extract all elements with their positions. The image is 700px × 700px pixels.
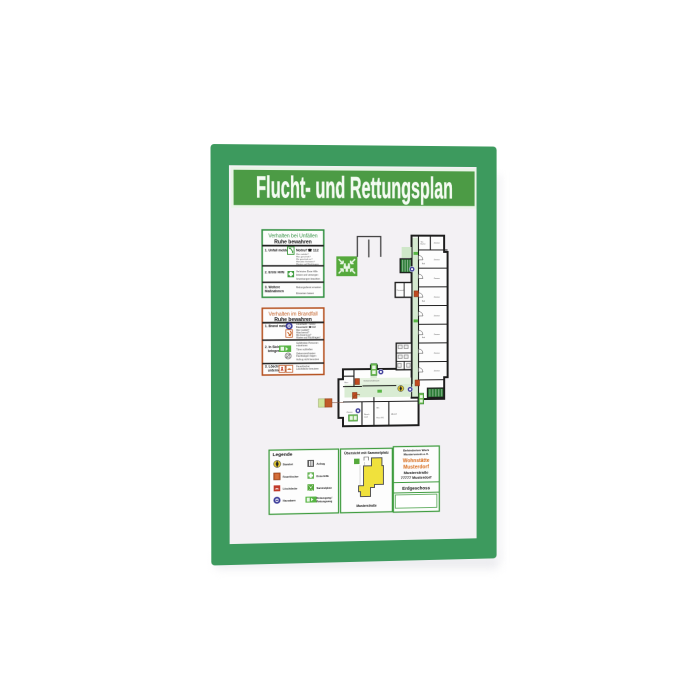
- svg-text:Abstell: Abstell: [391, 413, 397, 416]
- svg-text:Bad: Bad: [422, 337, 425, 339]
- svg-text:Büro: Büro: [344, 382, 348, 384]
- svg-text:Erdgeschoss: Erdgeschoss: [402, 485, 430, 490]
- svg-text:leisten und versorgen: leisten und versorgen: [296, 274, 319, 277]
- svg-text:raum: raum: [364, 417, 369, 419]
- svg-text:77777 Musterdorf: 77777 Musterdorf: [401, 476, 432, 480]
- svg-text:Legende: Legende: [273, 452, 293, 458]
- svg-text:Musterstraße: Musterstraße: [404, 470, 429, 475]
- svg-text:1. Unfall melden: 1. Unfall melden: [265, 248, 290, 252]
- svg-text:Zimmer: Zimmer: [434, 370, 440, 372]
- svg-text:Erste Hilfe: Erste Hilfe: [316, 474, 329, 478]
- svg-text:Zimmer: Zimmer: [434, 297, 440, 299]
- svg-text:Standort: Standort: [283, 462, 293, 466]
- svg-text:Haus WC: Haus WC: [376, 417, 384, 419]
- svg-text:Zimmer: Zimmer: [434, 259, 440, 261]
- svg-text:bringen: bringen: [268, 349, 280, 353]
- svg-text:Hausalarm: Hausalarm: [283, 498, 297, 502]
- svg-text:Aufzug nicht benutzen: Aufzug nicht benutzen: [296, 358, 319, 361]
- svg-text:Fluchtwegen folgen: Fluchtwegen folgen: [296, 355, 317, 358]
- svg-text:2. Erste Hilfe: 2. Erste Hilfe: [265, 270, 285, 274]
- svg-text:Zimmer: Zimmer: [434, 243, 440, 245]
- svg-text:Zimmer: Zimmer: [434, 315, 440, 317]
- svg-text:Sammelplatz: Sammelplatz: [317, 486, 333, 490]
- svg-text:Personal: Personal: [397, 290, 405, 292]
- svg-text:Türen schließen: Türen schließen: [296, 349, 313, 351]
- svg-text:Rettungsdienst erwarten: Rettungsdienst erwarten: [296, 286, 322, 289]
- svg-text:Wohnstätte: Wohnstätte: [403, 458, 430, 464]
- svg-text:Zimmer: Zimmer: [434, 353, 440, 355]
- svg-text:Löschdecke: Löschdecke: [283, 487, 298, 491]
- svg-text:Warten auf Rückfragen!: Warten auf Rückfragen!: [296, 336, 321, 339]
- svg-text:mitnehmen: mitnehmen: [296, 344, 308, 347]
- svg-text:Zimmer: Zimmer: [434, 278, 440, 280]
- svg-text:Gemeinschaftsraum: Gemeinschaftsraum: [363, 379, 379, 382]
- svg-text:unternehmen: unternehmen: [268, 368, 289, 372]
- svg-text:Zimmer: Zimmer: [346, 412, 352, 414]
- svg-text:Bad: Bad: [422, 263, 425, 265]
- svg-text:Löschdecke benutzen: Löschdecke benutzen: [296, 368, 319, 371]
- svg-text:Musterstraße: Musterstraße: [356, 504, 376, 508]
- svg-text:Anweisungen beachten: Anweisungen beachten: [296, 278, 321, 281]
- svg-text:Küche: Küche: [420, 244, 425, 246]
- svg-text:Aufzug: Aufzug: [316, 462, 325, 466]
- svg-text:Verletzten Erste Hilfe: Verletzten Erste Hilfe: [296, 270, 318, 273]
- svg-text:Übersicht mit Sammelplatz: Übersicht mit Sammelplatz: [344, 450, 389, 456]
- svg-text:Feuerwehr ☎ 112: Feuerwehr ☎ 112: [296, 326, 316, 329]
- svg-text:Feuerwehr / Notruf: Feuerwehr / Notruf: [296, 323, 316, 326]
- svg-text:Notruf ☎ 112: Notruf ☎ 112: [296, 248, 319, 252]
- svg-text:Musterverein e.V.: Musterverein e.V.: [404, 452, 429, 456]
- svg-text:Rettungsweg: Rettungsweg: [317, 499, 333, 503]
- svg-text:Ruhe bewahren: Ruhe bewahren: [274, 239, 312, 245]
- svg-text:Feuerlöscher: Feuerlöscher: [283, 475, 299, 479]
- svg-text:Einweisen lassen: Einweisen lassen: [296, 293, 315, 295]
- svg-text:Zimmer: Zimmer: [434, 334, 440, 336]
- svg-text:Flucht- und Rettungsplan: Flucht- und Rettungsplan: [256, 170, 453, 205]
- svg-text:Bad: Bad: [422, 301, 425, 303]
- svg-text:Maßnahmen: Maßnahmen: [265, 289, 284, 293]
